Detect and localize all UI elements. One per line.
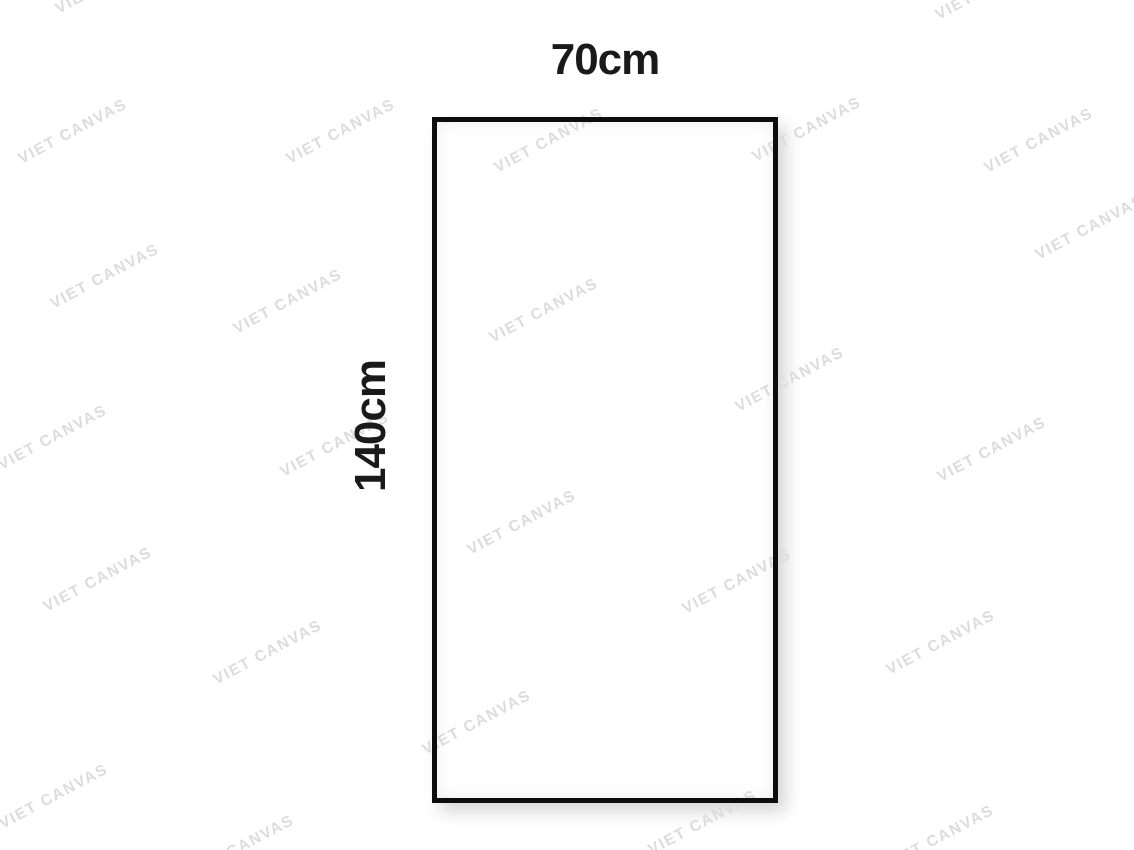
height-dimension-label: 140cm — [349, 360, 393, 492]
watermark-text: VIET CANVAS — [183, 812, 298, 850]
watermark-text: VIET CANVAS — [933, 0, 1048, 24]
watermark-text: VIET CANVAS — [0, 402, 110, 475]
watermark-text: VIET CANVAS — [53, 0, 168, 18]
watermark-text: VIET CANVAS — [1033, 192, 1134, 265]
watermark-text: VIET CANVAS — [982, 105, 1097, 178]
watermark-text: VIET CANVAS — [48, 241, 163, 314]
watermark-text: VIET CANVAS — [883, 802, 998, 850]
canvas-border — [432, 117, 778, 803]
watermark-text: VIET CANVAS — [16, 96, 131, 169]
watermark-text: VIET CANVAS — [41, 544, 156, 617]
watermark-text: VIET CANVAS — [884, 607, 999, 680]
watermark-text: VIET CANVAS — [231, 266, 346, 339]
watermark-text: VIET CANVAS — [0, 761, 111, 834]
watermark-text: VIET CANVAS — [211, 617, 326, 690]
watermark-text: VIET CANVAS — [935, 414, 1050, 487]
width-dimension-label: 70cm — [432, 38, 778, 82]
canvas-size-mockup: VIET CANVASVIET CANVASVIET CANVASVIET CA… — [0, 0, 1134, 850]
watermark-text: VIET CANVAS — [284, 96, 399, 169]
